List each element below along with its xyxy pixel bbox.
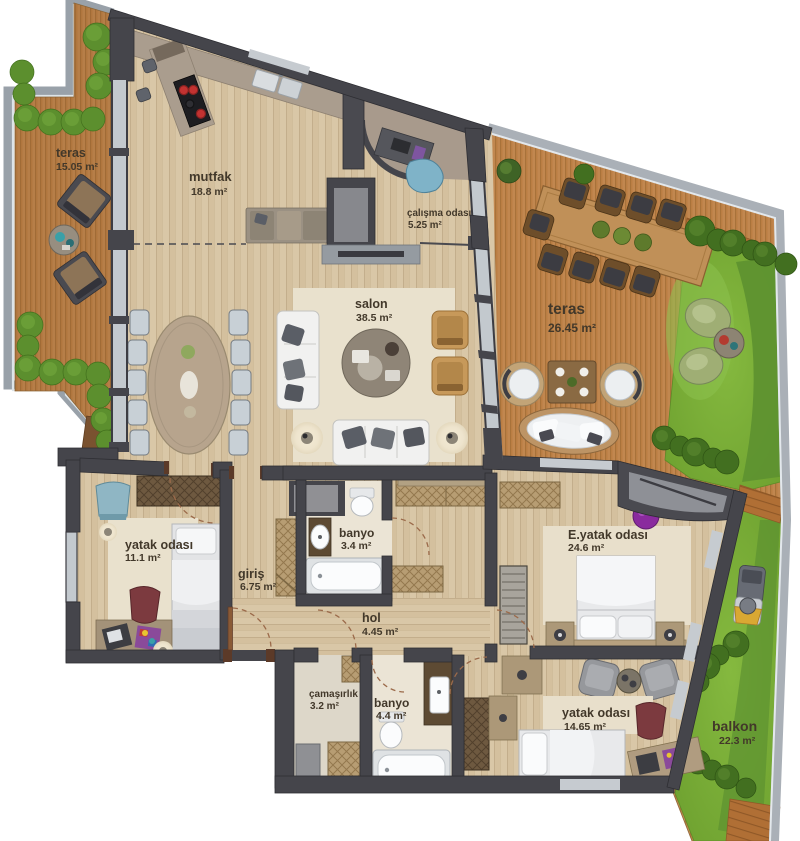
svg-text:6.75 m²: 6.75 m² [240, 581, 277, 593]
svg-text:4.45 m²: 4.45 m² [362, 626, 399, 638]
svg-text:24.6 m²: 24.6 m² [568, 542, 605, 554]
svg-text:yatak odası: yatak odası [125, 538, 193, 552]
svg-text:E.yatak odası: E.yatak odası [568, 528, 648, 542]
svg-text:balkon: balkon [712, 718, 757, 734]
svg-text:giriş: giriş [238, 567, 264, 581]
svg-text:4.4 m²: 4.4 m² [376, 710, 407, 722]
svg-text:15.05 m²: 15.05 m² [56, 161, 99, 173]
svg-text:teras: teras [548, 301, 585, 318]
svg-text:çamaşırlık: çamaşırlık [309, 689, 358, 700]
svg-text:11.1 m²: 11.1 m² [125, 552, 161, 564]
svg-text:yatak odası: yatak odası [562, 706, 630, 720]
svg-text:hol: hol [362, 611, 381, 625]
svg-text:26.45 m²: 26.45 m² [548, 321, 596, 335]
svg-text:mutfak: mutfak [189, 169, 232, 184]
svg-text:14.65 m²: 14.65 m² [564, 721, 607, 733]
svg-text:3.2 m²: 3.2 m² [310, 701, 340, 712]
svg-text:teras: teras [56, 146, 86, 160]
svg-text:18.8 m²: 18.8 m² [191, 186, 228, 198]
svg-text:22.3 m²: 22.3 m² [719, 735, 756, 747]
svg-text:3.4 m²: 3.4 m² [341, 540, 372, 552]
svg-text:çalışma odası: çalışma odası [407, 208, 472, 219]
svg-text:5.25 m²: 5.25 m² [408, 220, 443, 231]
svg-text:salon: salon [355, 297, 388, 311]
svg-text:banyo: banyo [339, 526, 374, 540]
svg-text:38.5 m²: 38.5 m² [356, 312, 393, 324]
svg-text:banyo: banyo [374, 696, 409, 710]
